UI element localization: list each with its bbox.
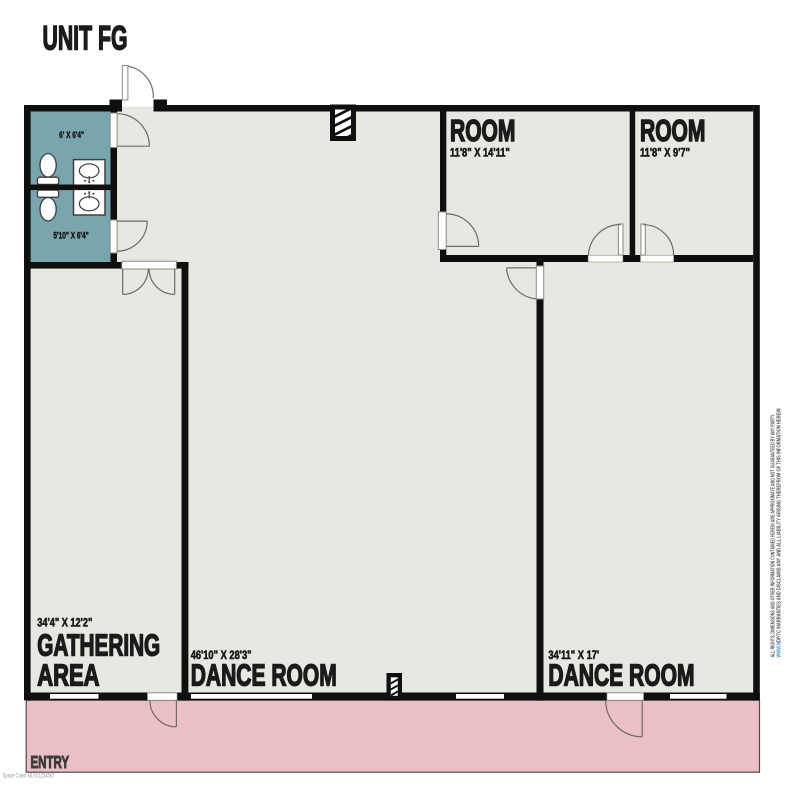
svg-text:WWW.NDP.TC WARRANTIES AND DISC: WWW.NDP.TC WARRANTIES AND DISCLAIMS ANY … [777, 408, 783, 657]
svg-text:AREA: AREA [37, 658, 99, 692]
svg-text:ROOM: ROOM [640, 113, 705, 148]
svg-text:ROOM: ROOM [450, 113, 515, 148]
svg-text:DANCE ROOM: DANCE ROOM [548, 657, 694, 692]
svg-text:DANCE ROOM: DANCE ROOM [191, 657, 337, 692]
svg-text:Space Coast MLS#1234567: Space Coast MLS#1234567 [3, 773, 55, 780]
svg-text:6' X 6'4": 6' X 6'4" [59, 130, 84, 141]
svg-text:ENTRY: ENTRY [31, 753, 70, 773]
svg-text:11'8" X 14'11": 11'8" X 14'11" [450, 148, 510, 160]
svg-text:UNIT FG: UNIT FG [43, 20, 128, 58]
svg-text:11'8" X 9'7": 11'8" X 9'7" [640, 148, 690, 160]
svg-text:5'10" X 6'4": 5'10" X 6'4" [53, 230, 88, 241]
